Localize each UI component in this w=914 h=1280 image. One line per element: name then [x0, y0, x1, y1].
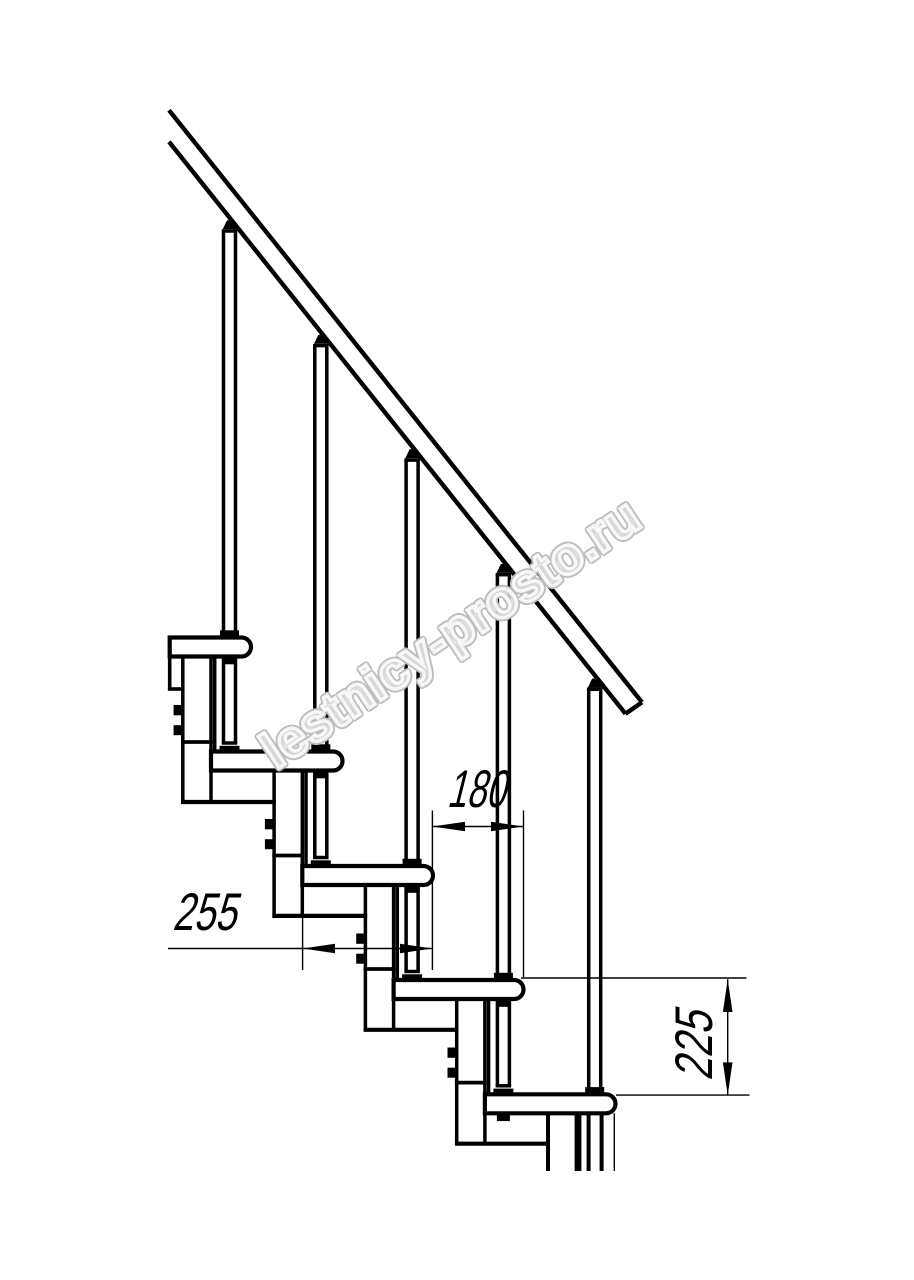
svg-text:225: 225	[665, 1000, 724, 1084]
